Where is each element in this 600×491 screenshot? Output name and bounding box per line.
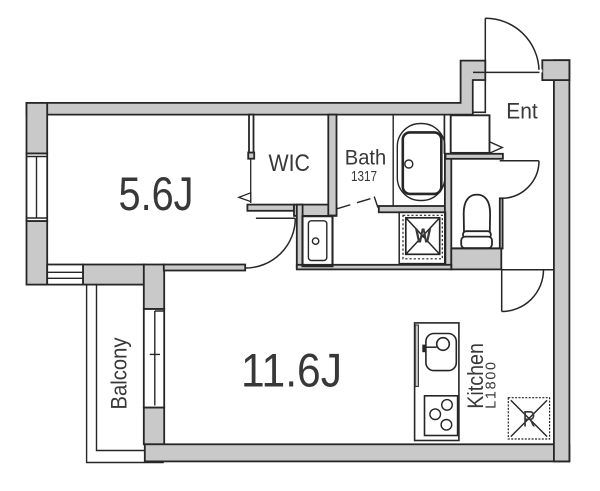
svg-text:11.6J: 11.6J <box>241 345 342 398</box>
svg-text:1317: 1317 <box>351 169 377 185</box>
svg-text:Bath: Bath <box>345 147 387 170</box>
svg-text:WIC: WIC <box>268 150 310 177</box>
svg-text:W: W <box>415 224 432 247</box>
svg-text:R: R <box>523 407 536 432</box>
svg-text:Ent: Ent <box>506 98 538 123</box>
svg-text:Balcony: Balcony <box>106 337 131 410</box>
svg-text:5.6J: 5.6J <box>119 168 194 221</box>
svg-text:L1800: L1800 <box>484 362 500 409</box>
